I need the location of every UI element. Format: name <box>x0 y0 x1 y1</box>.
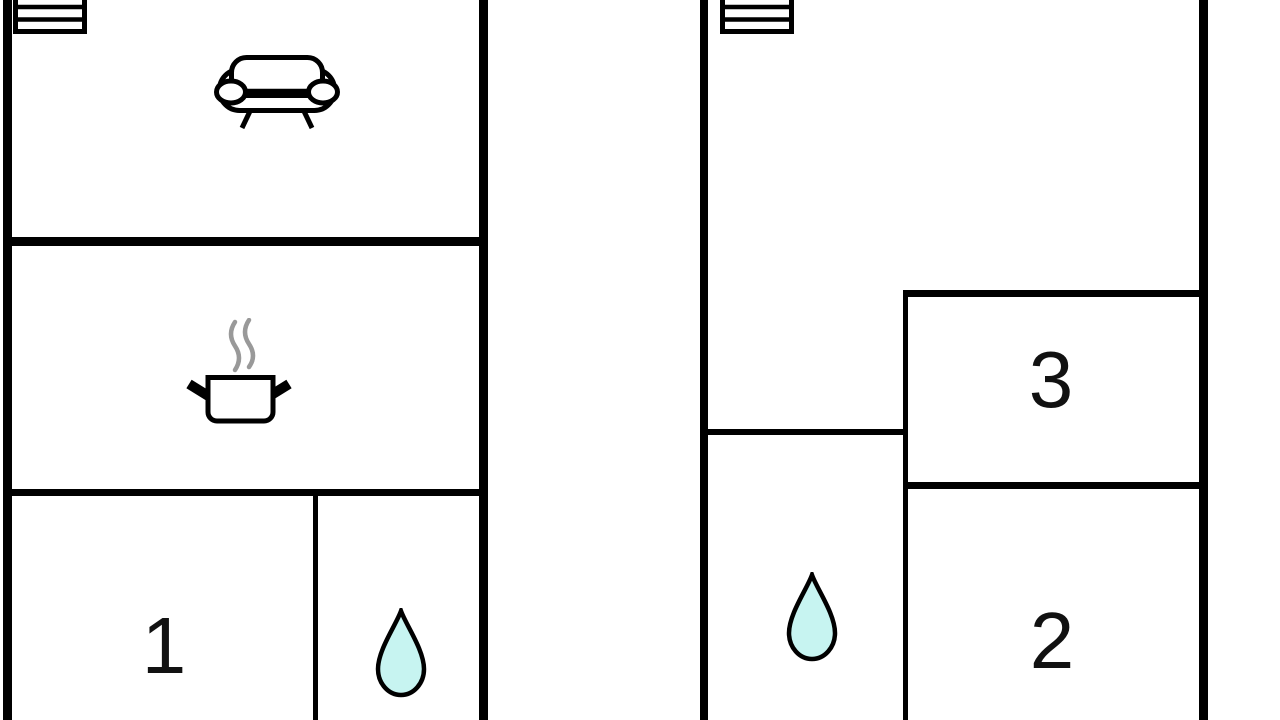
water-drop-icon <box>373 608 429 698</box>
left-plan-outer-wall-right <box>479 0 488 720</box>
cooking-pot-icon <box>183 318 295 426</box>
floor-plan-canvas: 1 3 2 <box>0 0 1280 720</box>
room-label-1: 1 <box>142 606 187 686</box>
stairs-icon <box>720 0 794 34</box>
right-plan-wall-bath-top <box>704 429 905 435</box>
stairs-icon <box>13 0 87 34</box>
right-plan-outer-wall-right <box>1199 0 1208 720</box>
room-label-3: 3 <box>1029 340 1074 420</box>
left-plan-wall-room1-bath <box>313 492 318 720</box>
sofa-icon <box>214 55 340 129</box>
water-drop-icon <box>784 572 840 662</box>
left-plan-wall-kitchen-bottom <box>3 489 488 496</box>
left-plan-outer-wall-left <box>3 0 12 720</box>
right-plan-wall-room3-top <box>903 290 1205 297</box>
left-plan-wall-living-kitchen <box>3 237 488 246</box>
right-plan-wall-room3-room2 <box>903 482 1205 489</box>
room-label-2: 2 <box>1030 601 1075 681</box>
right-plan-wall-vertical <box>903 292 908 720</box>
right-plan-outer-wall-left <box>700 0 708 720</box>
